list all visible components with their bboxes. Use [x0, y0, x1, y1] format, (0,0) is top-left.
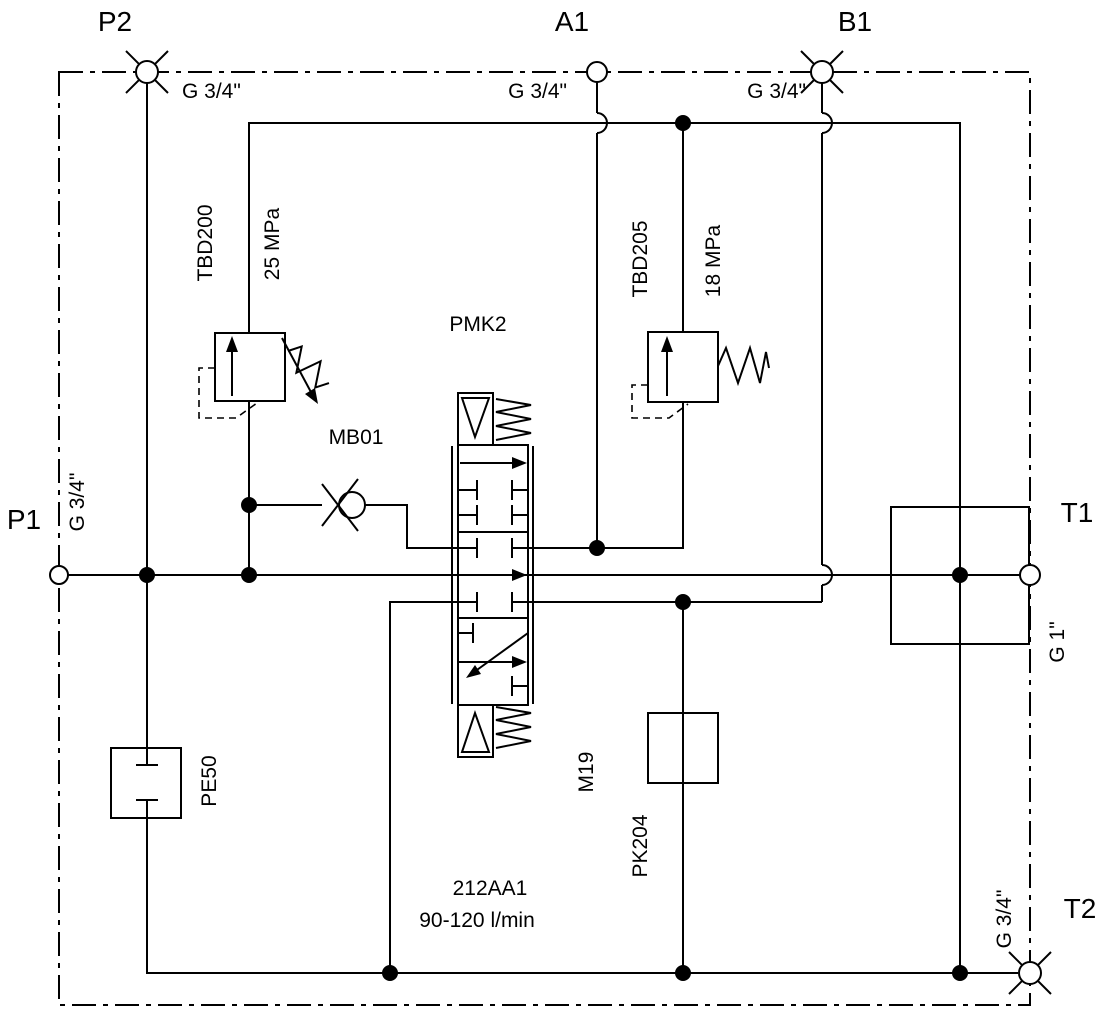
port-a1: A1 G 3/4": [508, 6, 607, 103]
pmk2-bottom-spring: [496, 707, 531, 748]
open-port-icon: [587, 62, 607, 82]
flow-range-label: 90-120 l/min: [419, 909, 535, 932]
port-t1: T1 G 1": [1020, 497, 1093, 663]
schematic-canvas: P2 G 3/4" A1 G 3/4" B1 G 3/4" P1 G 3/4" …: [0, 0, 1107, 1015]
pmk2-top-spring: [496, 399, 531, 440]
relief-valve-tbd200: [199, 333, 336, 418]
relief-valve-tbd205: [632, 332, 769, 418]
plugged-port-icon: [1019, 962, 1041, 984]
component-labels: TBD200 25 MPa TBD205 18 MPa PMK2 MB01 PE…: [194, 204, 725, 877]
model-code-label: 212AA1: [453, 877, 528, 900]
port-a1-thread: G 3/4": [508, 80, 567, 103]
pipe-check-out: [365, 505, 477, 548]
port-t1-label: T1: [1061, 497, 1094, 528]
port-p2: P2 G 3/4": [98, 6, 241, 103]
port-b1-thread: G 3/4": [747, 80, 806, 103]
tbd200-adjust-arrow: [282, 338, 312, 394]
plugged-port-icon: [136, 61, 158, 83]
check-valve-mb01: [322, 479, 365, 531]
notes-block: 212AA1 90-120 l/min: [419, 877, 535, 932]
tbd205-spring: [718, 348, 769, 383]
port-p2-label: P2: [98, 6, 132, 37]
mb01-id-label: MB01: [329, 426, 384, 449]
port-t1-thread: G 1": [1046, 621, 1069, 662]
plugged-port-icon: [811, 61, 833, 83]
port-b1: B1 G 3/4": [747, 6, 872, 103]
pmk2-bottom-pilot-triangle: [462, 713, 489, 752]
port-p1: P1 G 3/4": [7, 473, 89, 584]
pe50-id-label: PE50: [198, 755, 221, 806]
tbd200-setting-label: 25 MPa: [261, 207, 284, 280]
port-p2-thread: G 3/4": [182, 80, 241, 103]
port-a1-label: A1: [555, 6, 589, 37]
pipe-pe50-to-bottom: [147, 800, 1018, 973]
port-t2-label: T2: [1064, 893, 1097, 924]
port-t2-thread: G 3/4": [993, 890, 1016, 949]
open-port-icon: [50, 566, 68, 584]
port-p1-label: P1: [7, 504, 41, 535]
tbd200-id-label: TBD200: [194, 204, 217, 281]
pmk2-id-label: PMK2: [449, 313, 506, 336]
m19-id-label: M19: [575, 752, 598, 793]
open-port-icon: [1020, 565, 1040, 585]
pk204-id-label: PK204: [629, 814, 652, 877]
port-b1-label: B1: [838, 6, 872, 37]
port-t2: T2 G 3/4": [993, 890, 1096, 994]
port-p1-thread: G 3/4": [66, 473, 89, 532]
tbd205-id-label: TBD205: [629, 220, 652, 297]
tbd205-setting-label: 18 MPa: [702, 224, 725, 297]
hydraulic-manifold-schematic: P2 G 3/4" A1 G 3/4" B1 G 3/4" P1 G 3/4" …: [0, 0, 1107, 1015]
pmk2-top-pilot-triangle: [462, 398, 489, 437]
